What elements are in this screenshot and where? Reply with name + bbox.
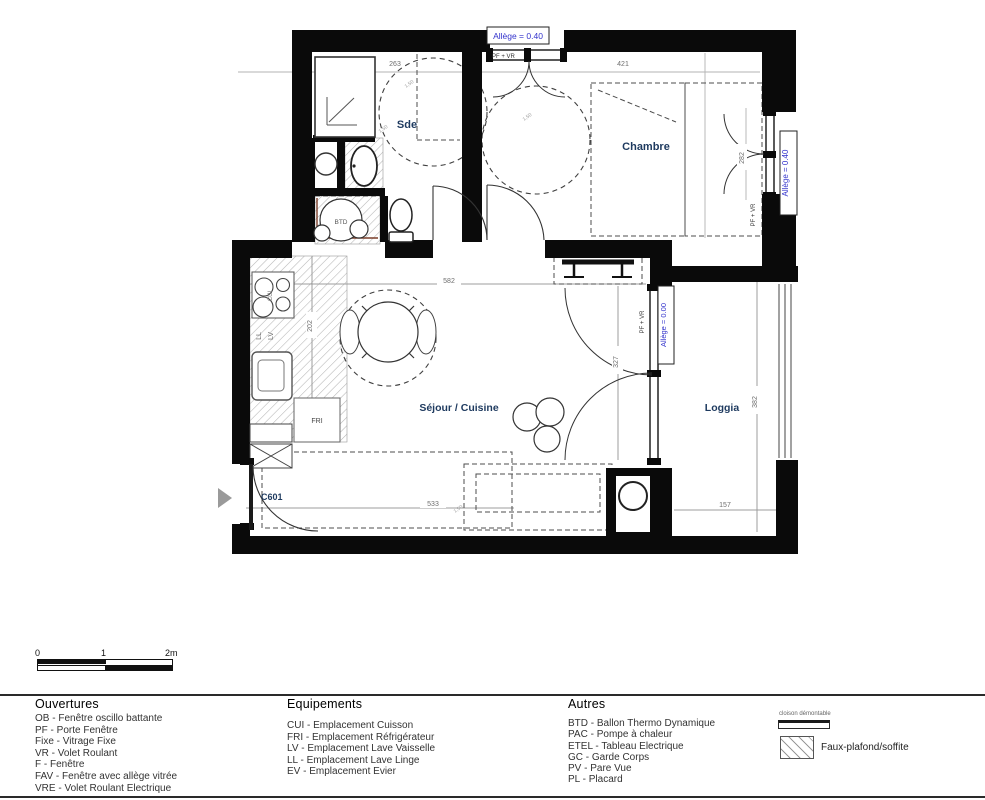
entry-door-code: C601 [261, 492, 283, 502]
chair-right [416, 310, 436, 354]
dim-chambre-top: 421 [617, 61, 629, 68]
faux-plafond-symbol [780, 736, 814, 759]
dim-bay-height: 327 [613, 356, 620, 368]
legend-item: EV - Emplacement Evier [287, 766, 435, 778]
scale-tick-2: 2m [165, 648, 178, 658]
floor-plan-svg: BTD CUI LL LV FRI [0, 0, 985, 800]
dim-sde-top: 263 [389, 61, 401, 68]
legend-title-autres: Autres [568, 697, 715, 711]
legend-column-autres: Autres BTD - Ballon Thermo Dynamique PAC… [568, 697, 715, 786]
legend-item: LV - Emplacement Lave Vaisselle [287, 743, 435, 755]
lv-label: LV [268, 332, 275, 340]
legend-column-equipements: Equipements CUI - Emplacement Cuisson FR… [287, 697, 435, 778]
legend-column-ouvertures: Ouvertures OB - Fenêtre oscillo battante… [35, 697, 177, 794]
ll-label: LL [256, 332, 263, 340]
svg-text:1,50: 1,50 [522, 112, 534, 123]
loggia-railing [779, 284, 791, 458]
pf-vr-east-label: PF + VR [751, 203, 757, 227]
dim-sejour-width: 582 [443, 278, 455, 285]
legend-item: FAV - Fenêtre avec allège vitrée [35, 771, 177, 783]
allege-000-label: Allège = 0.00 [659, 303, 668, 347]
legend-item: CUI - Emplacement Cuisson [287, 720, 435, 732]
legend-item: PAC - Pompe à chaleur [568, 729, 715, 740]
legend-item: PV - Pare Vue [568, 763, 715, 774]
armchair-circles [513, 398, 564, 452]
legend-item: BTD - Ballon Thermo Dynamique [568, 718, 715, 729]
scale-tick-0: 0 [35, 648, 40, 658]
dim-loggia-width: 157 [719, 502, 731, 509]
legend-title-ouvertures: Ouvertures [35, 697, 177, 711]
legend-title-equipements: Equipements [287, 697, 435, 711]
duct-box [250, 444, 292, 468]
room-label-chambre: Chambre [622, 141, 670, 153]
allege-040-east-label: Allège = 0.40 [781, 149, 790, 196]
bay-window-sejour: Allège = 0.00 PF + VR [565, 284, 674, 465]
dim-kitchen-depth: 202 [307, 320, 314, 332]
room-label-sde: Sde [397, 119, 417, 131]
scale-bar: 0 1 2m [37, 648, 177, 674]
window-east: Allège = 0.40 PF + VR [724, 109, 797, 226]
door-leaf [249, 464, 253, 530]
legend-item: GC - Garde Corps [568, 752, 715, 763]
fri-label: FRI [311, 418, 322, 425]
entry-hall-zone [262, 452, 512, 528]
svg-text:1,50: 1,50 [453, 504, 465, 515]
legend-item: F - Fenêtre [35, 759, 177, 771]
legend-item: ETEL - Tableau Electrique [568, 741, 715, 752]
pac-unit [616, 476, 650, 532]
cloison-demontable-symbol [778, 720, 830, 729]
legend-top-rule [0, 694, 985, 696]
room-label-sejour: Séjour / Cuisine [419, 402, 499, 414]
chair-left [340, 310, 360, 354]
legend-item: LL - Emplacement Lave Linge [287, 755, 435, 767]
btd-label: BTD [335, 219, 348, 226]
pf-vr-bay-label: PF + VR [640, 310, 646, 334]
turning-circle-chambre [482, 86, 590, 194]
legend-item: VRE - Volet Roulant Electrique [35, 783, 177, 795]
legend-item: PF - Porte Fenêtre [35, 725, 177, 737]
legend-bottom-rule [0, 796, 985, 798]
allege-040-north-label: Allège = 0.40 [493, 31, 543, 41]
cui-label: CUI [268, 291, 274, 302]
small-basin [315, 153, 337, 175]
turning-circle-notes: 1,50 1,50 1,50 1,50 [378, 79, 534, 515]
scale-bar-box [37, 659, 173, 671]
pf-vr-north-label: PF + VR [492, 54, 516, 60]
sejour-furniture [340, 302, 564, 452]
room-label-loggia: Loggia [705, 402, 740, 414]
desk [562, 262, 634, 277]
legend-item: VR - Volet Roulant [35, 748, 177, 760]
legend-item: FRI - Emplacement Réfrigérateur [287, 732, 435, 744]
floor-plan-page: { "colors": { "wall": "#0a0a0a", "allege… [0, 0, 985, 800]
scale-tick-1: 1 [101, 648, 106, 658]
legend-item: OB - Fenêtre oscillo battante [35, 713, 177, 725]
legend-item: PL - Placard [568, 774, 715, 785]
dim-chambre-window: 282 [739, 152, 746, 164]
shaft-box [250, 424, 292, 442]
wc [389, 199, 413, 242]
cloison-demontable-label: cloison démontable [779, 711, 831, 717]
legend-item: Fixe - Vitrage Fixe [35, 736, 177, 748]
svg-text:1,50: 1,50 [404, 79, 416, 90]
dim-entry-width: 533 [427, 501, 439, 508]
faux-plafond-label: Faux-plafond/soffite [821, 742, 909, 753]
entry-arrow-icon [218, 488, 232, 508]
dim-loggia-height: 382 [752, 396, 759, 408]
